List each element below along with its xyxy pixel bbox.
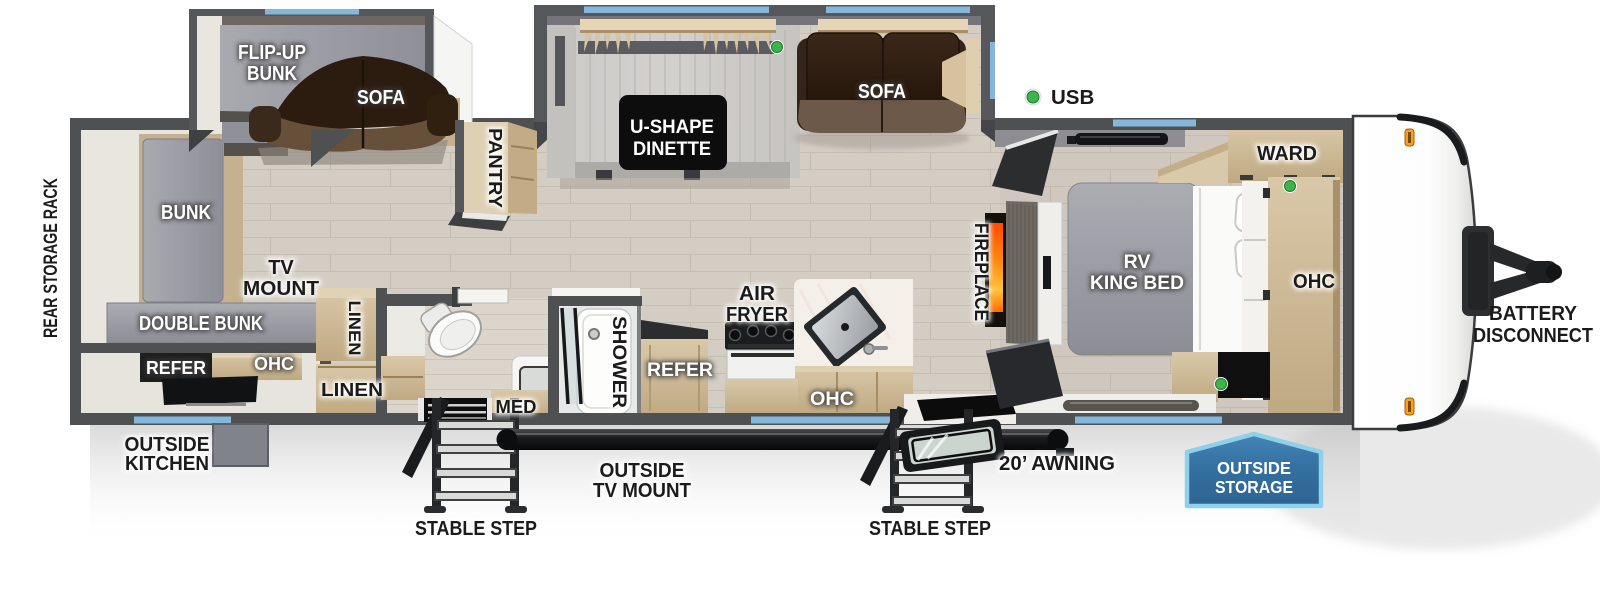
svg-text:SHOWER: SHOWER — [608, 316, 629, 408]
svg-text:FLIP-UP: FLIP-UP — [238, 42, 306, 64]
svg-text:OUTSIDE: OUTSIDE — [1217, 458, 1291, 478]
svg-text:SOFA: SOFA — [858, 81, 906, 103]
svg-text:REAR STORAGE RACK: REAR STORAGE RACK — [40, 178, 62, 338]
svg-text:OHC: OHC — [254, 353, 294, 374]
svg-text:LINEN: LINEN — [345, 301, 363, 356]
svg-text:PANTRY: PANTRY — [485, 128, 505, 208]
svg-text:OHC: OHC — [1293, 270, 1335, 293]
svg-text:STABLE STEP: STABLE STEP — [869, 517, 991, 540]
svg-text:OHC: OHC — [810, 388, 854, 410]
svg-text:DINETTE: DINETTE — [633, 138, 711, 160]
svg-text:FRYER: FRYER — [726, 304, 789, 326]
svg-text:DISCONNECT: DISCONNECT — [1473, 325, 1593, 347]
svg-text:STABLE STEP: STABLE STEP — [415, 517, 537, 540]
svg-text:LINEN: LINEN — [321, 380, 383, 400]
svg-text:STORAGE: STORAGE — [1215, 477, 1293, 497]
svg-text:MOUNT: MOUNT — [243, 278, 319, 300]
svg-text:MED: MED — [496, 397, 537, 417]
svg-text:SOFA: SOFA — [357, 87, 405, 109]
svg-text:AIR: AIR — [739, 283, 776, 305]
svg-text:REFER: REFER — [146, 357, 206, 378]
svg-text:BATTERY: BATTERY — [1489, 303, 1578, 325]
svg-text:20’ AWNING: 20’ AWNING — [999, 452, 1115, 475]
svg-text:RV: RV — [1124, 251, 1151, 273]
svg-text:KING BED: KING BED — [1090, 272, 1184, 294]
svg-text:DOUBLE BUNK: DOUBLE BUNK — [139, 313, 263, 335]
svg-text:U-SHAPE: U-SHAPE — [630, 116, 714, 138]
svg-text:TV MOUNT: TV MOUNT — [593, 480, 691, 502]
svg-text:BUNK: BUNK — [247, 63, 297, 85]
svg-text:REFER: REFER — [647, 359, 713, 381]
svg-text:OUTSIDE: OUTSIDE — [600, 460, 685, 482]
svg-text:USB: USB — [1051, 86, 1094, 109]
svg-text:WARD: WARD — [1257, 142, 1317, 165]
svg-text:BUNK: BUNK — [161, 202, 211, 224]
svg-text:FIREPLACE: FIREPLACE — [970, 223, 991, 321]
svg-text:TV: TV — [268, 257, 294, 279]
svg-text:KITCHEN: KITCHEN — [125, 453, 209, 475]
